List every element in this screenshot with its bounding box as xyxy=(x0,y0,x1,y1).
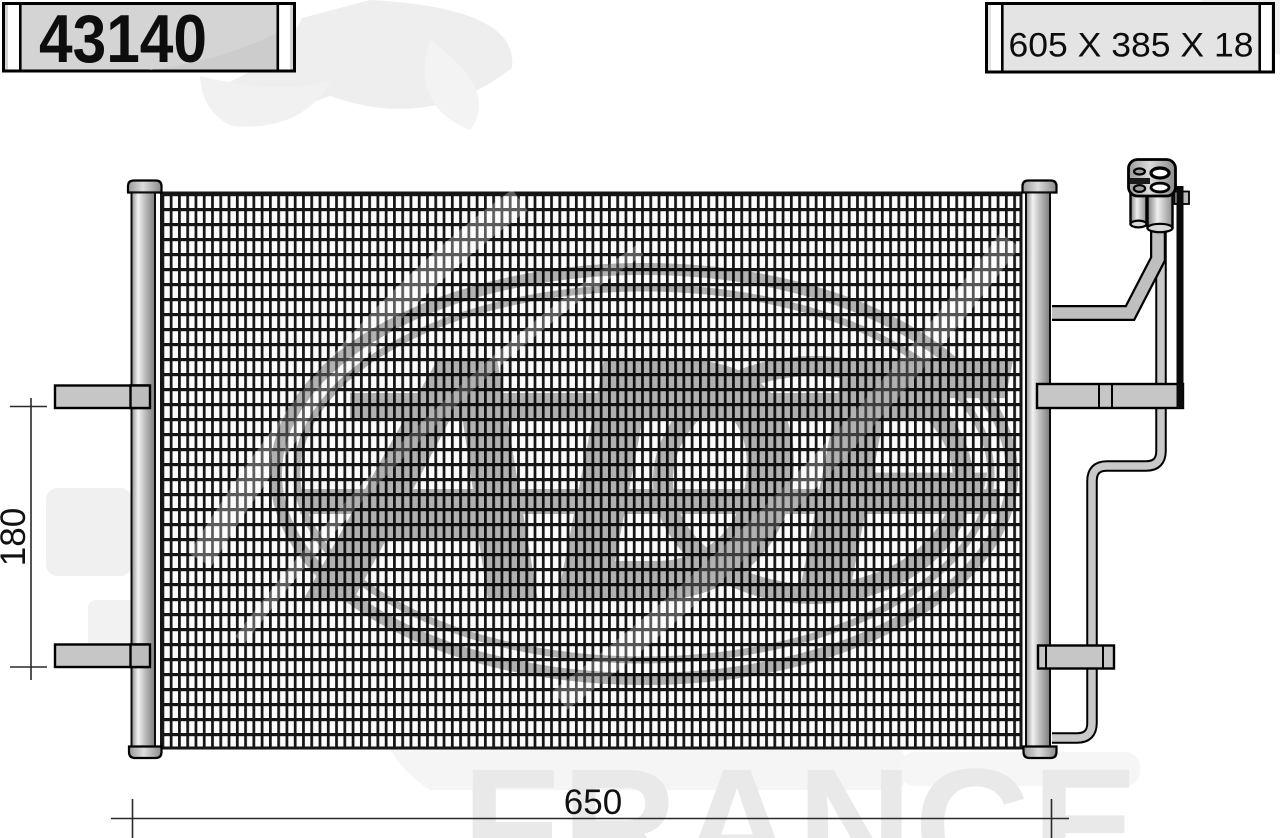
svg-text:43140: 43140 xyxy=(39,1,207,77)
svg-text:180: 180 xyxy=(0,508,33,566)
svg-text:650: 650 xyxy=(564,783,622,822)
svg-text:605 X 385 X 18: 605 X 385 X 18 xyxy=(1009,27,1254,65)
